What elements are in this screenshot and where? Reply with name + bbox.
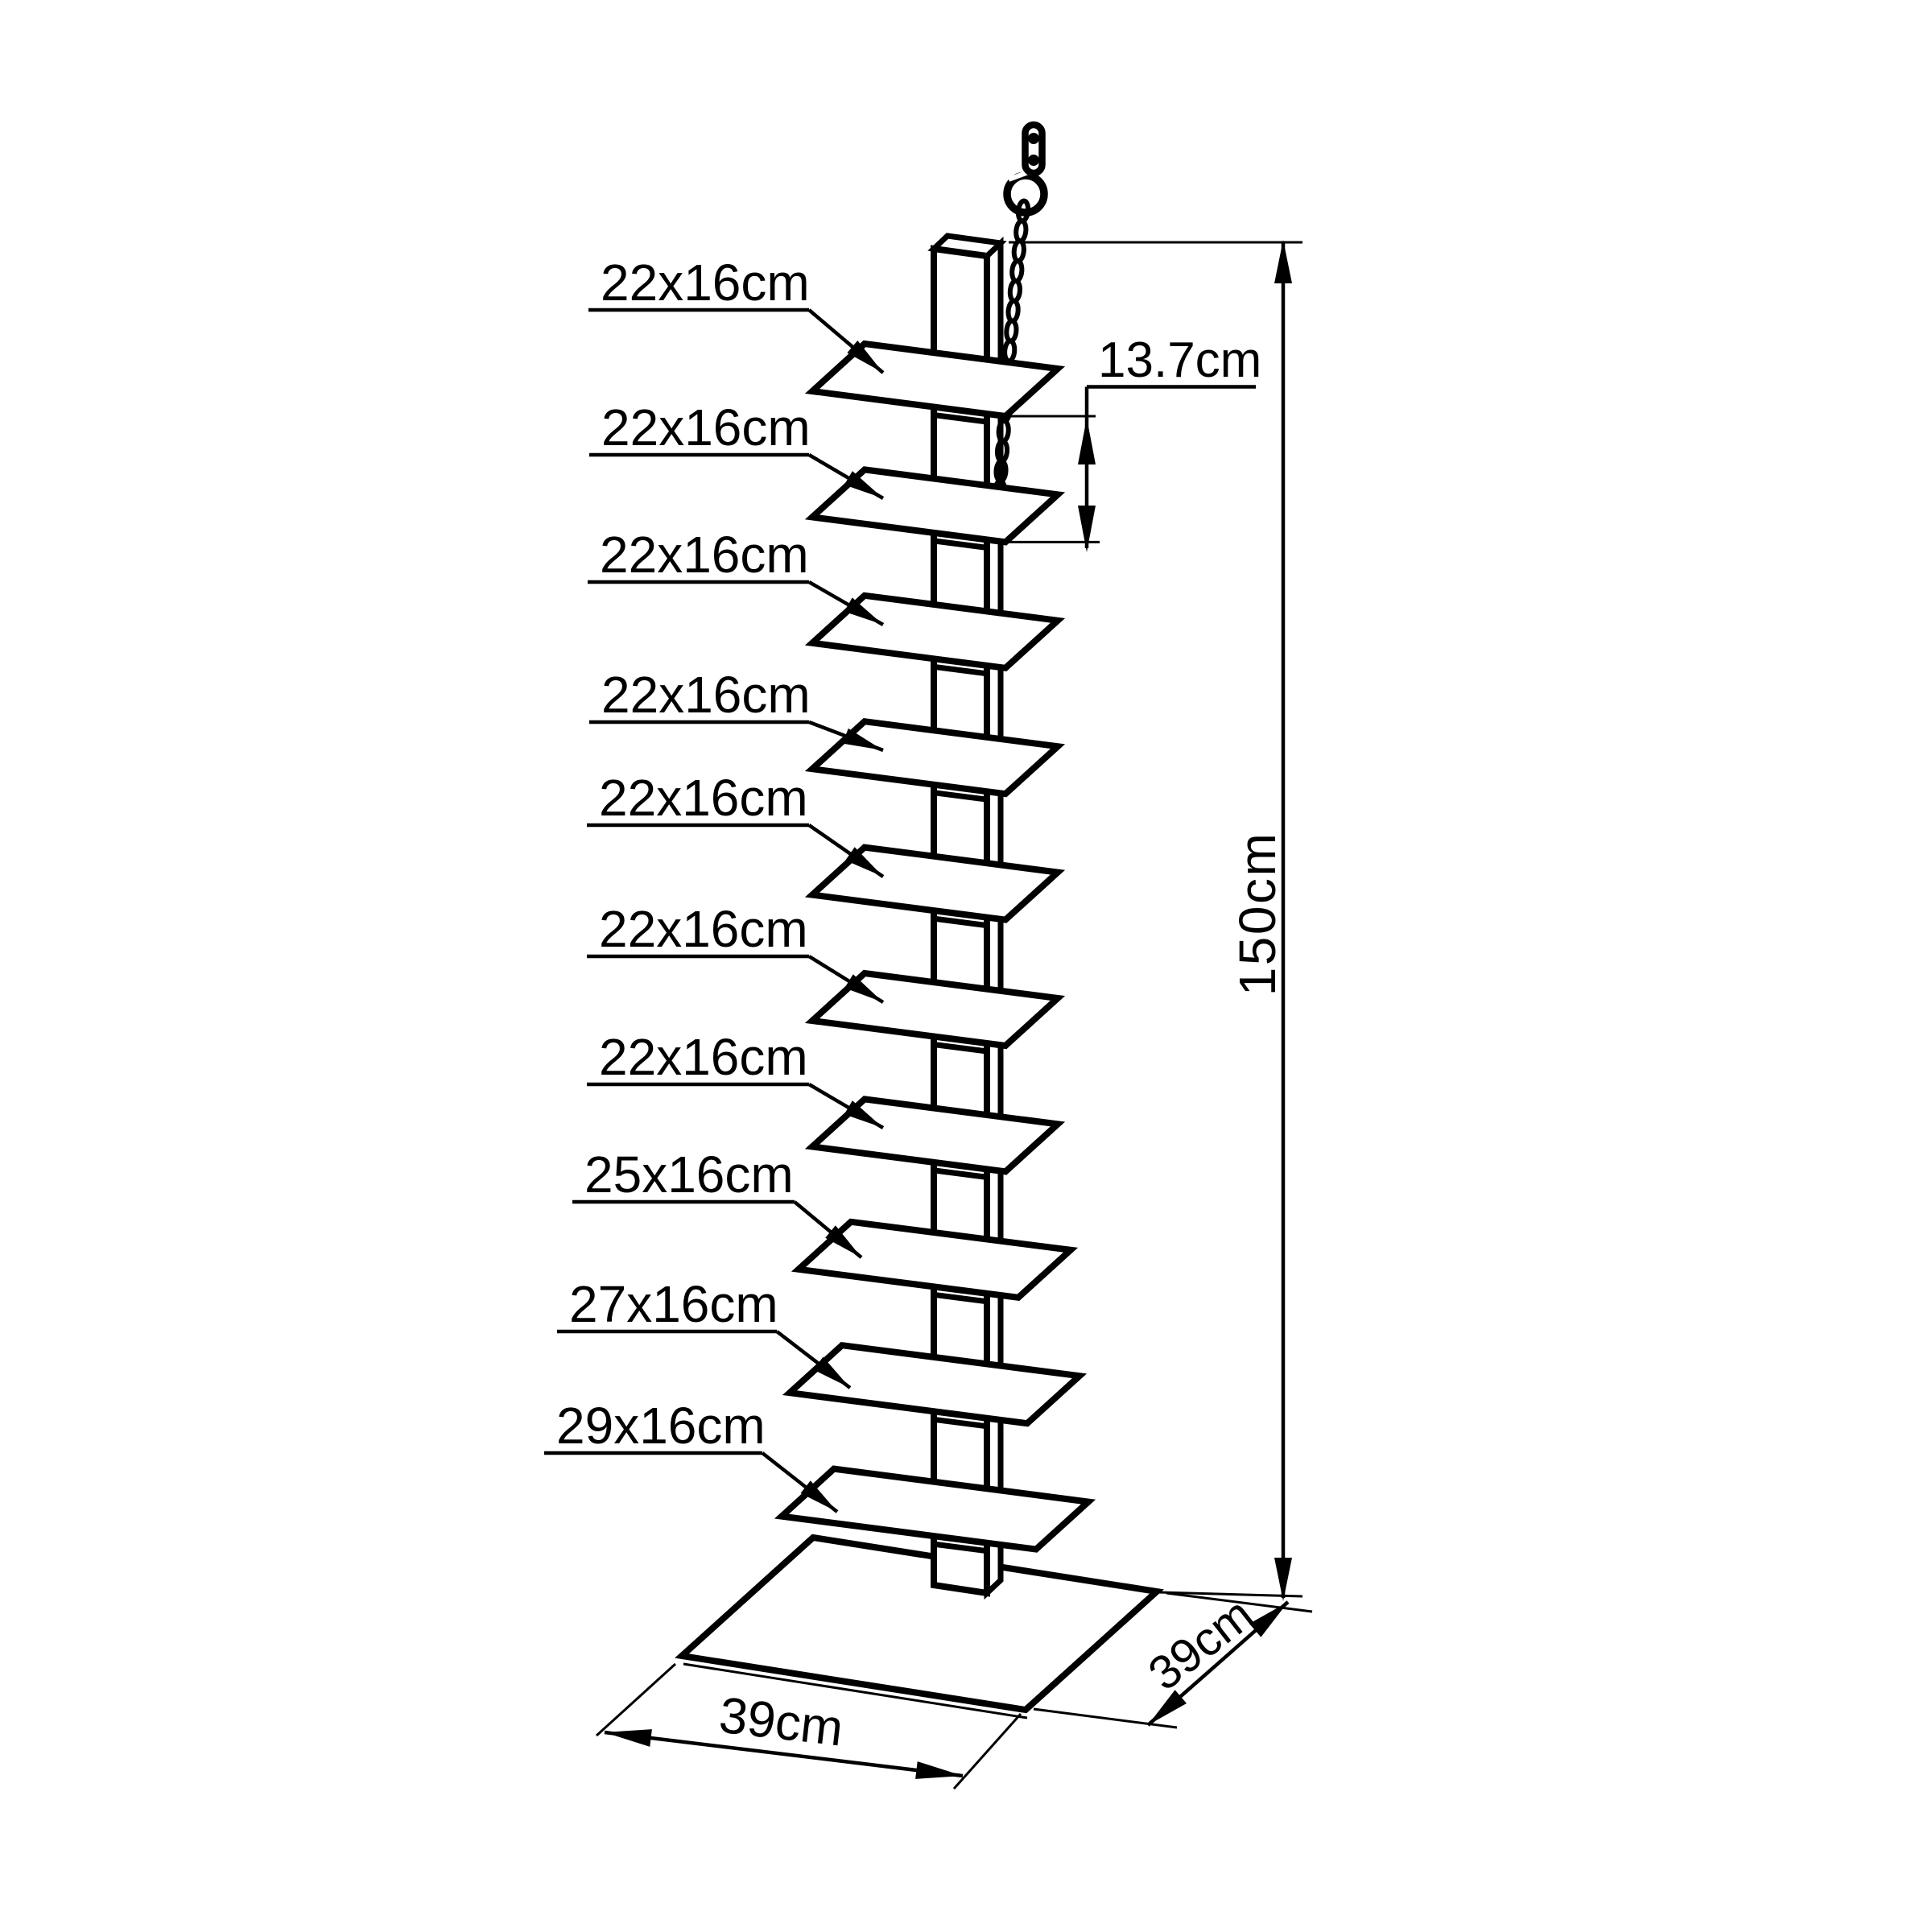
svg-text:29x16cm: 29x16cm	[556, 1397, 766, 1455]
svg-text:22x16cm: 22x16cm	[601, 666, 811, 724]
svg-text:22x16cm: 22x16cm	[599, 769, 808, 827]
svg-text:13.7cm: 13.7cm	[1098, 332, 1261, 388]
svg-text:27x16cm: 27x16cm	[569, 1275, 778, 1333]
svg-text:25x16cm: 25x16cm	[584, 1146, 794, 1203]
svg-text:22x16cm: 22x16cm	[599, 900, 808, 958]
svg-text:22x16cm: 22x16cm	[599, 1028, 808, 1086]
svg-text:22x16cm: 22x16cm	[600, 526, 809, 584]
svg-text:22x16cm: 22x16cm	[601, 398, 811, 456]
svg-text:22x16cm: 22x16cm	[601, 254, 810, 312]
svg-text:150cm: 150cm	[1228, 832, 1286, 997]
